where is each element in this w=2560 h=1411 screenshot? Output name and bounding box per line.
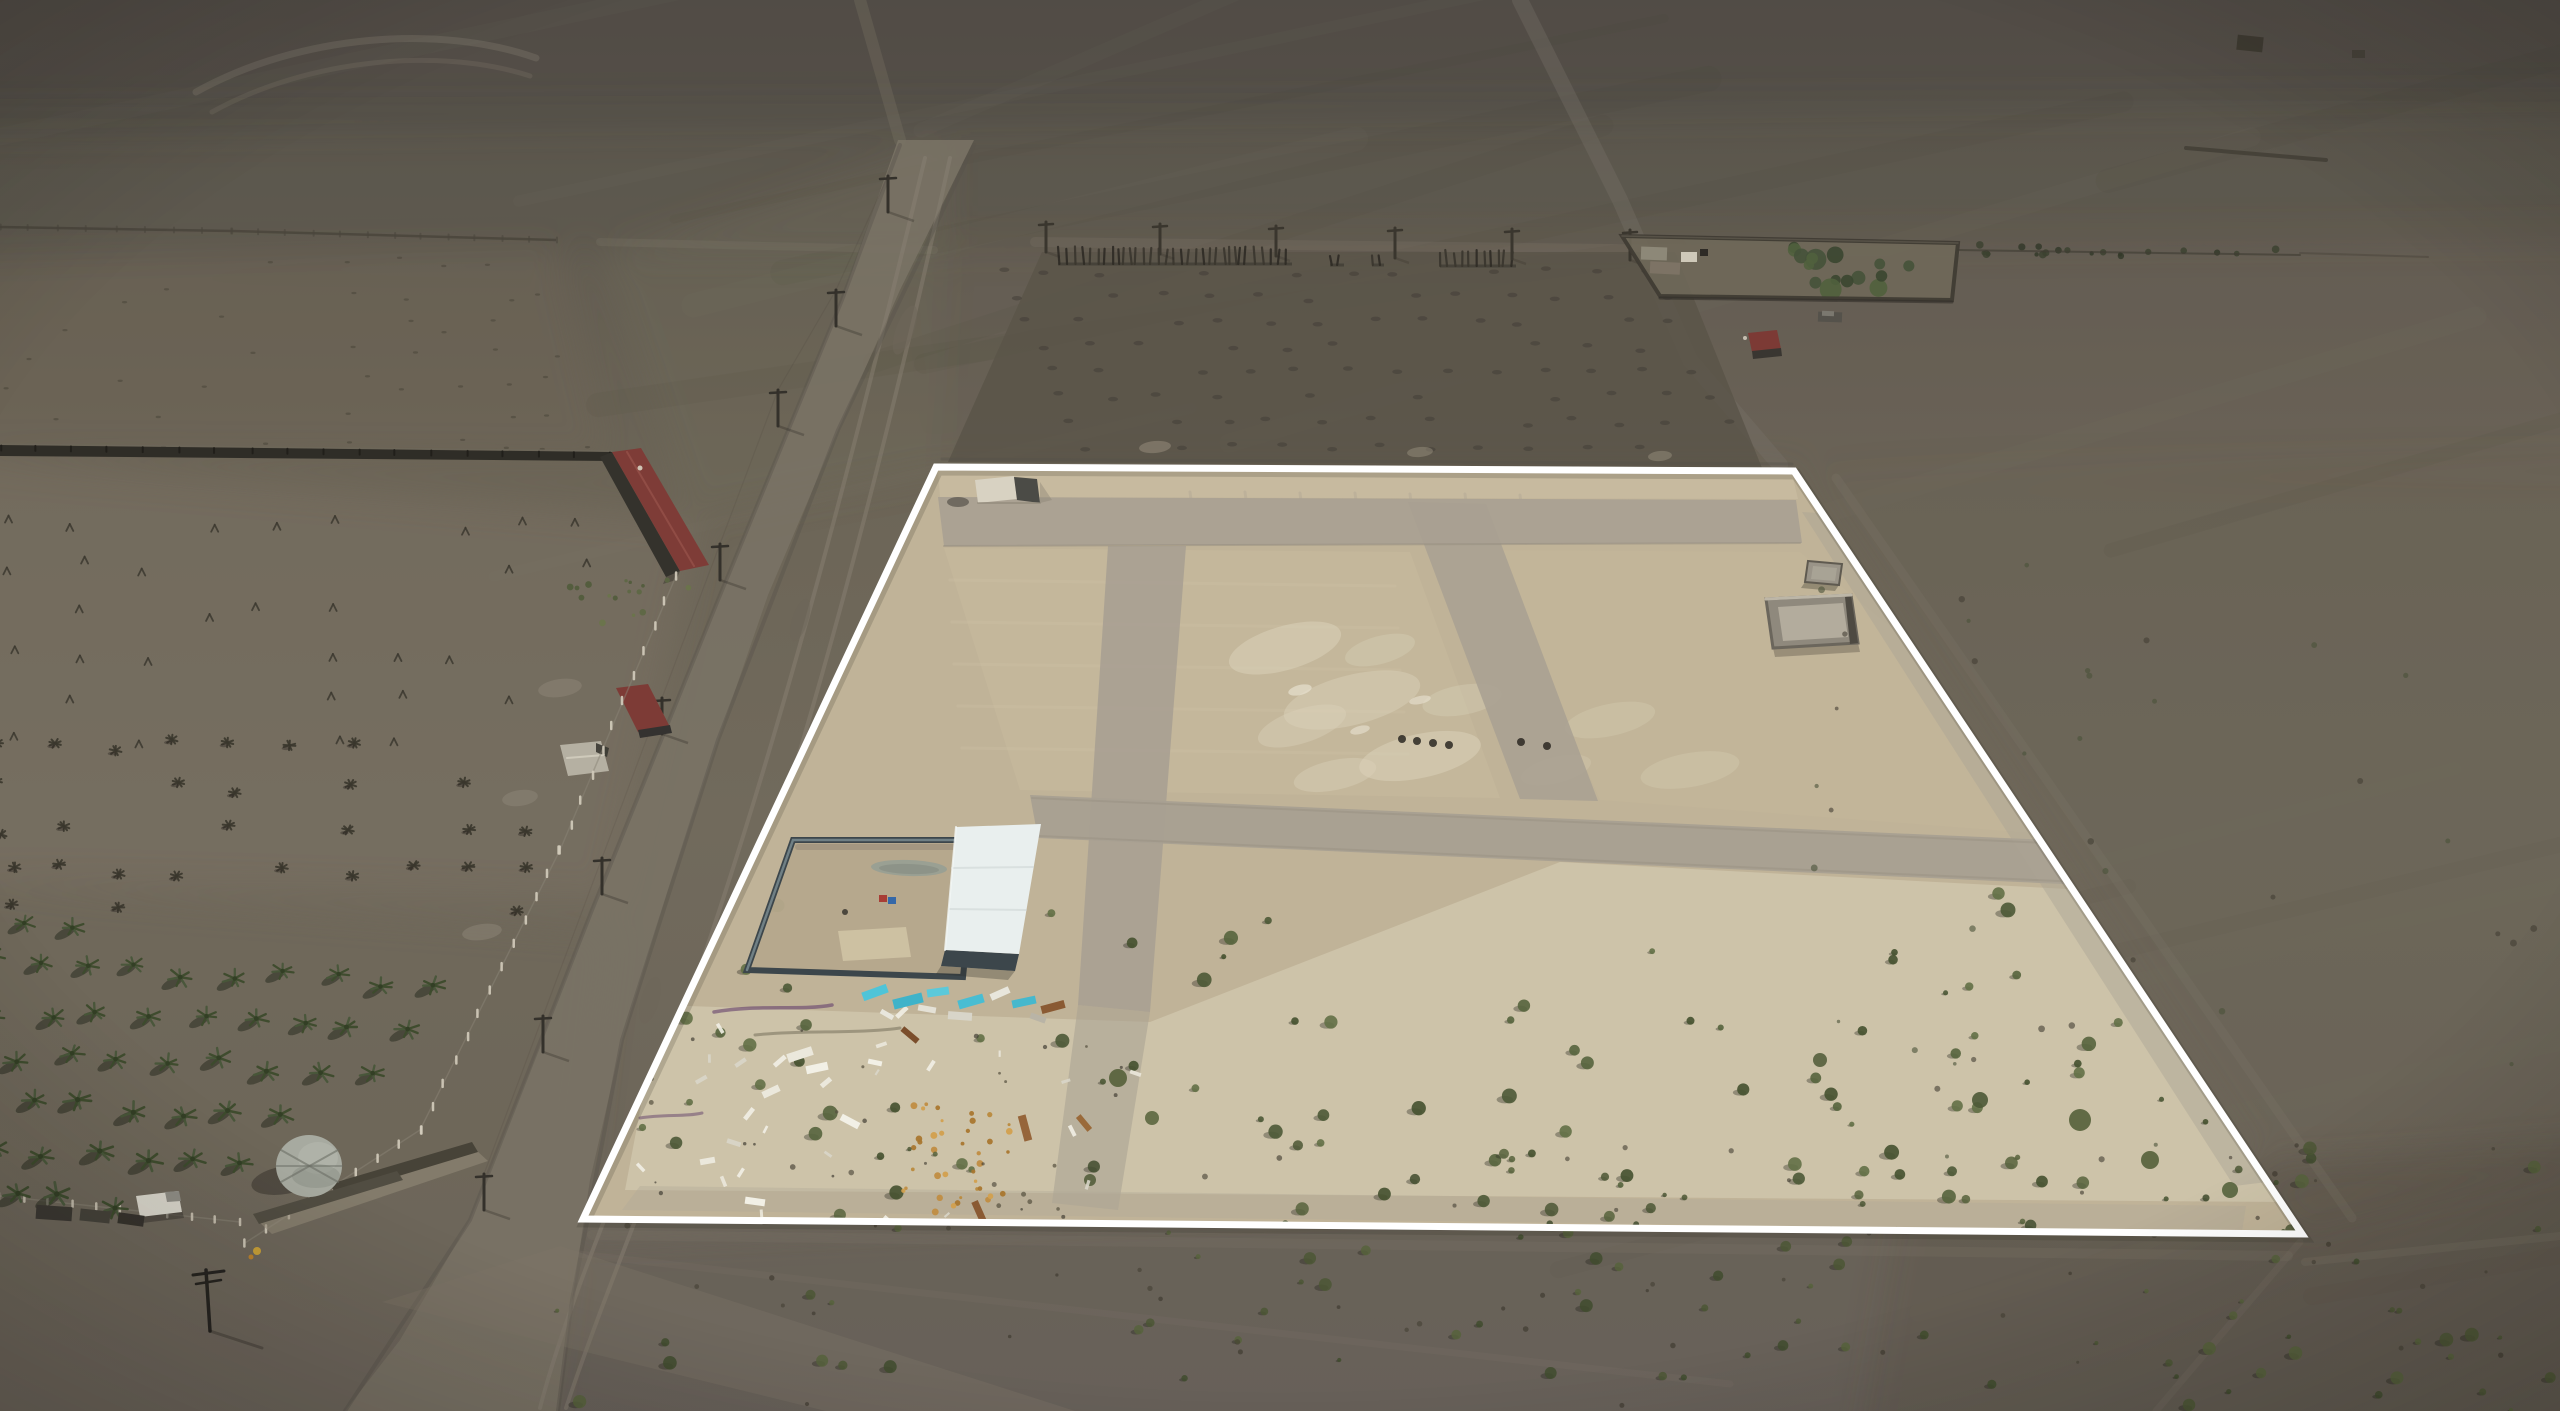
photo-vignette <box>0 0 2560 1411</box>
scene-root <box>0 0 2560 1411</box>
aerial-photo-canvas <box>0 0 2560 1411</box>
aerial-drone-photo-of-fenced-land-parcel <box>0 0 2560 1411</box>
